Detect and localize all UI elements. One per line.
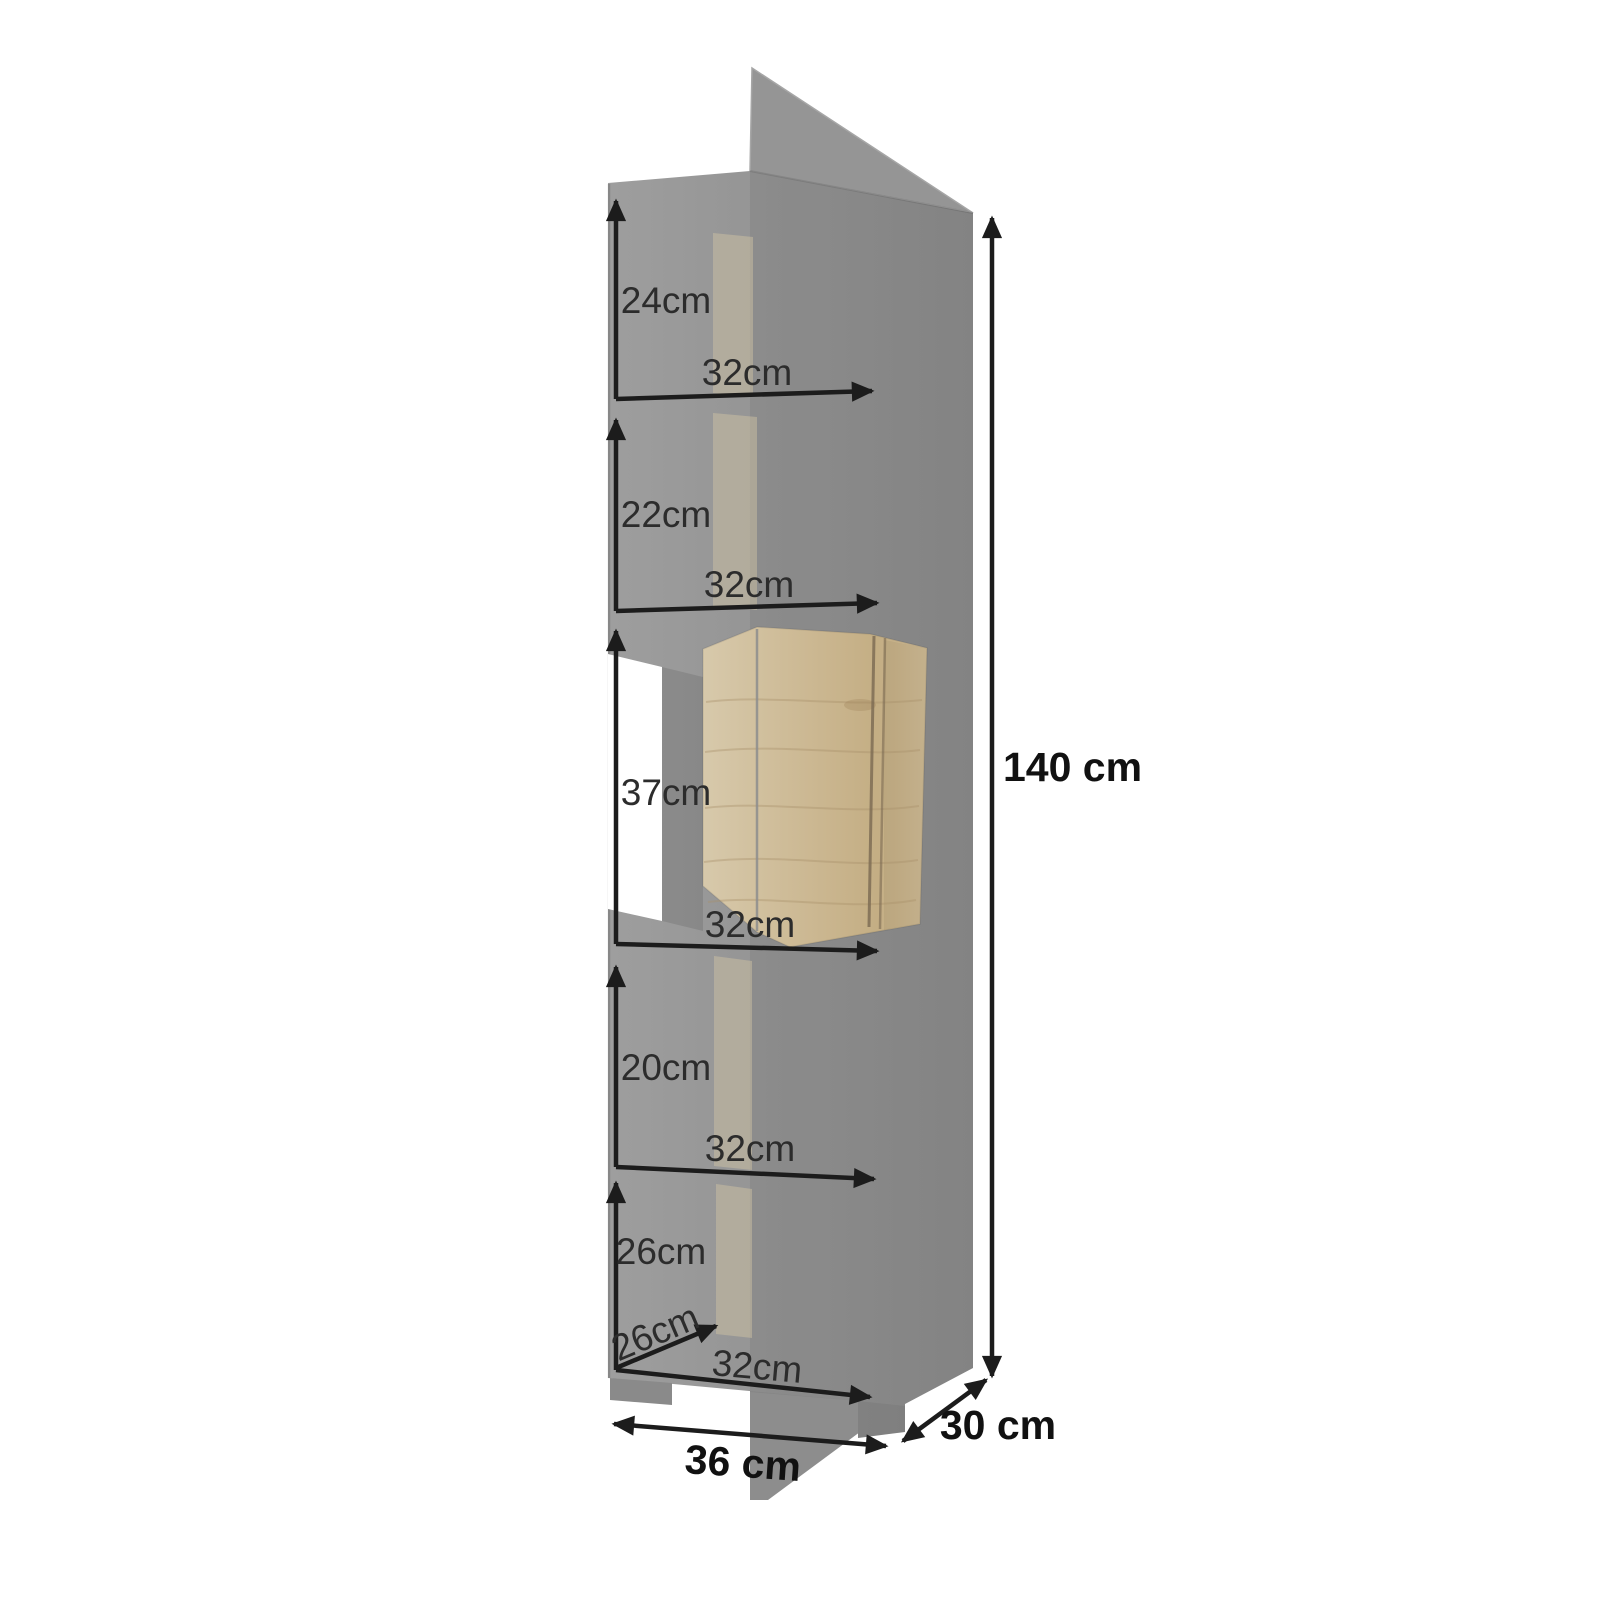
label-section4-width: 32cm — [705, 1128, 795, 1169]
label-section4-height: 20cm — [621, 1047, 711, 1088]
label-overall-height: 140 cm — [1003, 744, 1142, 790]
wood-door-right-shade — [884, 640, 927, 930]
label-section3-width: 32cm — [705, 904, 795, 945]
label-overall-width: 36 cm — [683, 1436, 802, 1490]
wood-knot — [844, 699, 876, 711]
label-section5-height: 26cm — [616, 1231, 706, 1272]
label-section1-height: 24cm — [621, 280, 711, 321]
cabinet-diagram-canvas: 24cm 32cm 22cm 32cm 37cm 32cm 20cm 32cm … — [0, 0, 1600, 1600]
cabinet-foot-right — [858, 1401, 905, 1438]
label-section5-width: 32cm — [710, 1342, 804, 1391]
interior-wood-strip-bottom — [716, 1184, 752, 1338]
label-section3-height: 37cm — [621, 772, 711, 813]
label-section1-width: 32cm — [702, 352, 792, 393]
label-section2-height: 22cm — [621, 494, 711, 535]
label-section2-width: 32cm — [704, 564, 794, 605]
furniture-dimension-diagram: 24cm 32cm 22cm 32cm 37cm 32cm 20cm 32cm … — [0, 0, 1600, 1600]
label-overall-depth: 30 cm — [940, 1402, 1056, 1448]
